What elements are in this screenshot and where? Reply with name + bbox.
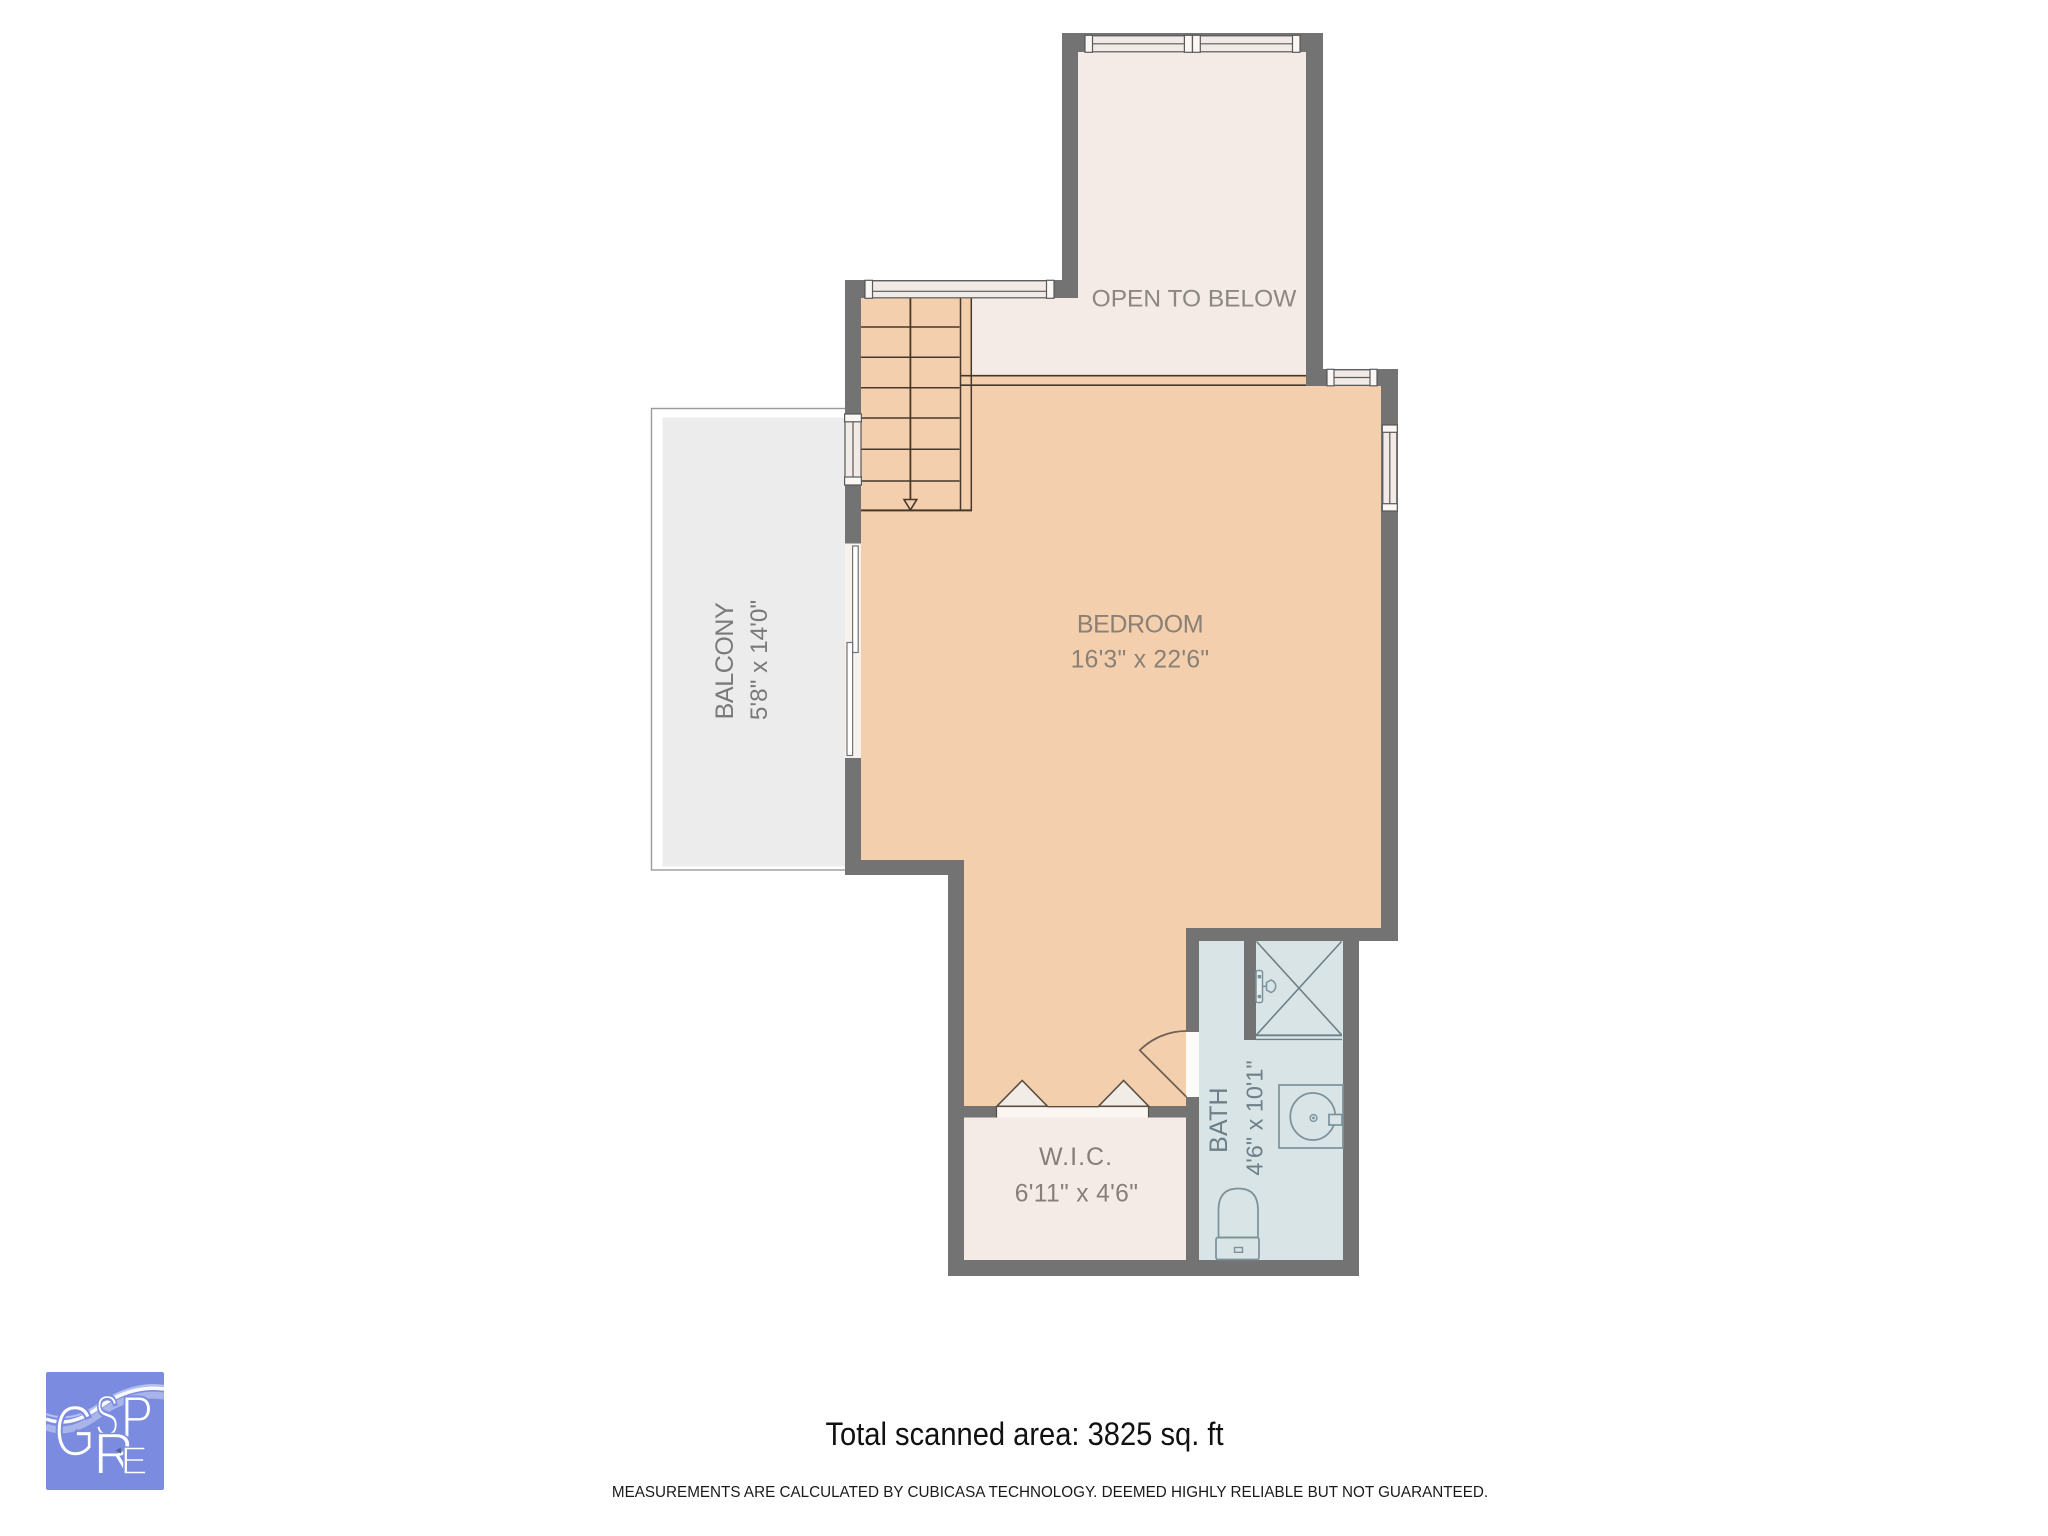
- svg-text:W.I.C.: W.I.C.: [1039, 1143, 1113, 1171]
- svg-text:6'11" x 4'6": 6'11" x 4'6": [1015, 1181, 1139, 1208]
- svg-text:E: E: [121, 1440, 148, 1483]
- svg-text:5'8" x 14'0": 5'8" x 14'0": [746, 600, 773, 720]
- svg-text:4'6" x 10'1": 4'6" x 10'1": [1242, 1060, 1268, 1175]
- svg-text:BEDROOM: BEDROOM: [1077, 611, 1203, 639]
- svg-text:G: G: [54, 1392, 95, 1472]
- svg-text:BALCONY: BALCONY: [711, 602, 739, 719]
- svg-text:OPEN TO BELOW: OPEN TO BELOW: [1092, 286, 1298, 313]
- svg-text:Total scanned area: 3825 sq. f: Total scanned area: 3825 sq. ft: [825, 1416, 1223, 1453]
- svg-text:BATH: BATH: [1205, 1087, 1233, 1153]
- svg-text:MEASUREMENTS ARE CALCULATED BY: MEASUREMENTS ARE CALCULATED BY CUBICASA …: [612, 1484, 1488, 1501]
- svg-text:16'3" x 22'6": 16'3" x 22'6": [1071, 647, 1210, 674]
